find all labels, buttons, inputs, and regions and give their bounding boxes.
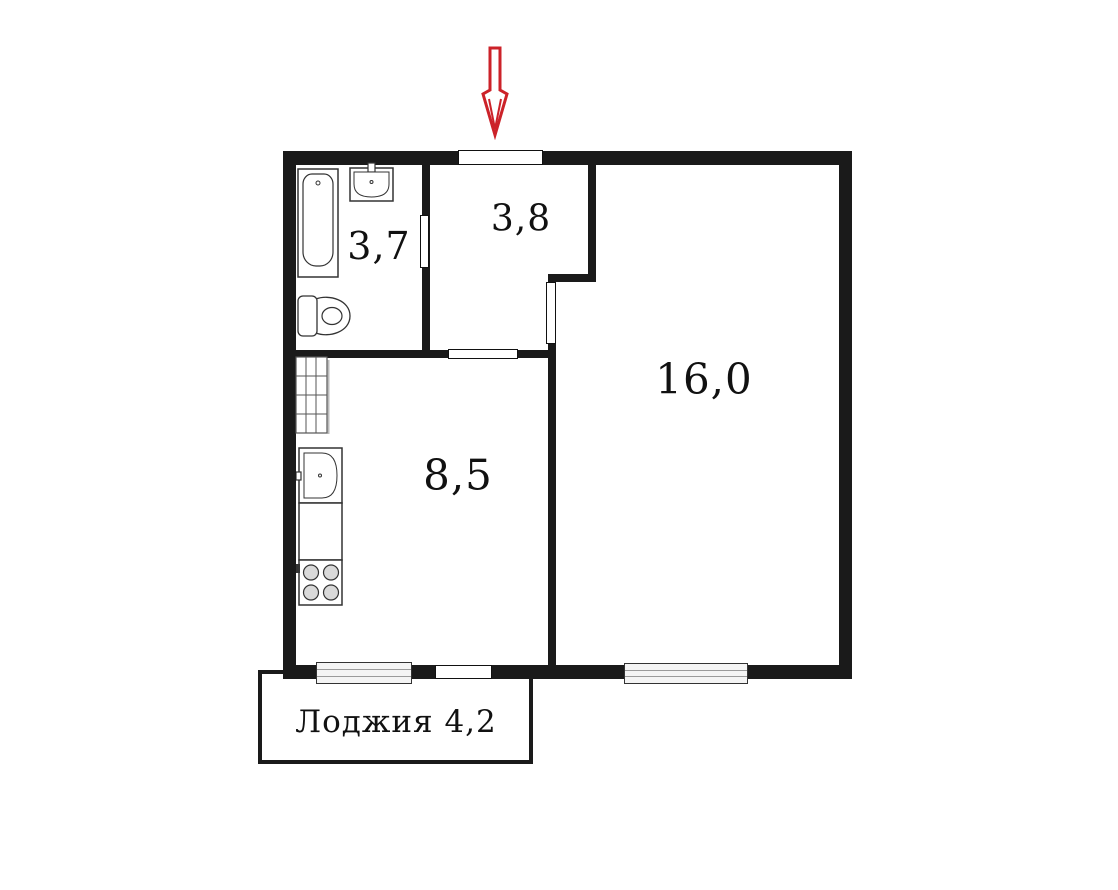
kitchen-loggia-window [316,662,412,684]
room-living [556,165,839,666]
wash-basin-icon [348,162,395,202]
floor-plan: 3,7 3,8 16,0 8,5 Лоджия 4,2 [0,0,1118,890]
label-hallway-area: 3,8 [491,199,551,240]
worktop [299,503,342,560]
bathroom-door [420,215,429,268]
entrance-arrow-icon [474,45,516,140]
toilet-icon [296,293,356,339]
bathtub-icon [296,167,341,281]
label-bathroom-area: 3,7 [347,224,410,268]
wall-hallway-living-upper [588,165,596,275]
label-kitchen-area: 8,5 [423,451,493,500]
wall-hallway-step [548,274,596,282]
wall-kitchen-living [548,350,556,666]
kitchen-door [448,349,518,359]
label-living-area: 16,0 [655,355,753,404]
kitchen-counter [296,446,344,608]
ventilation-shaft-icon [295,356,331,436]
label-loggia: Лоджия 4,2 [295,704,497,740]
wall-right [839,151,852,679]
loggia-door [435,665,492,679]
entrance-door [458,150,543,165]
living-room-door [546,282,556,344]
living-room-window [624,663,748,684]
